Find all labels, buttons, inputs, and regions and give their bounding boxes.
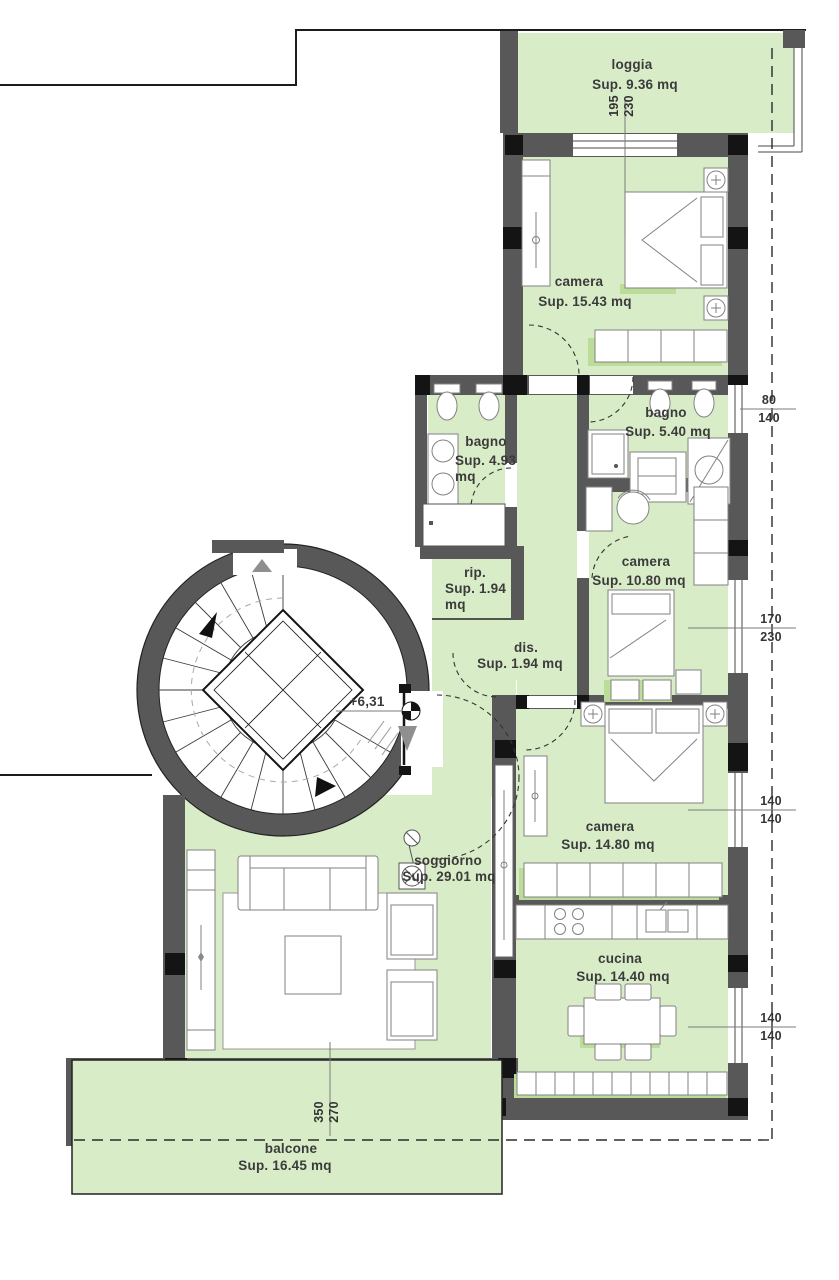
room-label-dis: dis. [514,640,538,655]
balcony [72,1060,502,1194]
dim-balcone-w: 350 [312,1101,326,1122]
room-label-balcone: balcone [265,1141,318,1156]
room-label-bagno-small: bagno [465,434,507,449]
kitchen-counter [516,902,728,939]
dim-camera-mid-h: 230 [760,630,781,644]
room-area-camera-low: Sup. 14.80 mq [561,837,654,852]
dim-camera-low-h: 140 [760,812,781,826]
coffee-table [285,936,341,994]
dim-bagno-h: 140 [758,411,779,425]
floor-plan: loggia Sup. 9.36 mq camera Sup. 15.43 mq… [0,0,839,1280]
dim-balcone-h: 270 [327,1101,341,1122]
spiral-staircase [137,544,443,836]
room-label-camera-mid: camera [622,554,671,569]
room-label-bagno: bagno [645,405,687,420]
room-area-balcone: Sup. 16.45 mq [238,1158,331,1173]
radiator [517,1072,727,1095]
dim-cucina-h: 140 [760,1029,781,1043]
room-label-loggia: loggia [612,57,653,72]
armchair [387,970,437,1040]
level-marker-icon [402,702,420,720]
room-area-rip-1: Sup. 1.94 [445,581,506,596]
dim-loggia-h: 230 [622,95,636,116]
dresser [595,330,727,362]
room-area-bagno: Sup. 5.40 mq [625,424,711,439]
room-label-soggiorno: soggiorno [414,853,482,868]
room-area-cucina: Sup. 14.40 mq [576,969,669,984]
dim-loggia-w: 195 [607,95,621,116]
sofa [238,856,378,910]
dim-camera-low-w: 140 [760,794,781,808]
room-area-loggia: Sup. 9.36 mq [592,77,678,92]
room-area-dis: Sup. 1.94 mq [477,656,563,671]
room-label-camera-low: camera [586,819,635,834]
wardrobe [522,160,550,286]
room-area-bagno-small-2: mq [455,469,476,484]
armchair [387,893,437,959]
floor-plan-page: loggia Sup. 9.36 mq camera Sup. 15.43 mq… [0,0,839,1280]
dim-camera-mid-w: 170 [760,612,781,626]
room-area-camera-mid: Sup. 10.80 mq [592,573,685,588]
room-area-bagno-small-1: Sup. 4.93 [455,453,516,468]
room-area-rip-2: mq [445,597,466,612]
room-area-soggiorno: Sup. 29.01 mq [402,869,495,884]
dim-cucina-w: 140 [760,1011,781,1025]
room-label-camera-top: camera [555,274,604,289]
dim-bagno-w: 80 [762,393,776,407]
room-label-rip: rip. [464,565,486,580]
level-marker-label: +6,31 [349,694,384,709]
room-area-camera-top: Sup. 15.43 mq [538,294,631,309]
room-label-cucina: cucina [598,951,642,966]
